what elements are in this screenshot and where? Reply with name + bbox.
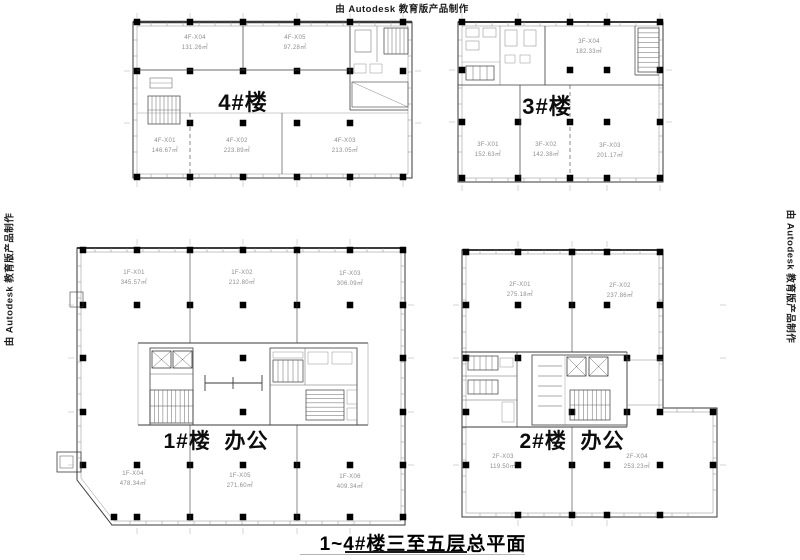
- room-label: 1F-X02212.80㎡: [229, 268, 255, 288]
- room-area: 142.38㎡: [533, 150, 559, 160]
- room-label: 1F-X05271.60㎡: [227, 471, 253, 491]
- room-label: 1F-X04478.34㎡: [120, 469, 146, 489]
- room-label: 2F-X01275.18㎡: [507, 280, 533, 300]
- room-code: 1F-X02: [229, 268, 255, 278]
- room-label: 4F-X04131.26㎡: [182, 33, 208, 53]
- room-code: 4F-X02: [224, 136, 250, 146]
- building-label: 1#楼 办公: [163, 425, 268, 455]
- room-code: 2F-X03: [490, 452, 516, 462]
- building-label: 3#楼: [522, 89, 571, 121]
- room-area: 131.26㎡: [182, 43, 208, 53]
- autodesk-watermark-left: 由 Autodesk 教育版产品制作: [2, 200, 15, 360]
- room-area: 119.50㎡: [490, 462, 516, 472]
- room-area: 223.89㎡: [224, 146, 250, 156]
- room-code: 3F-X02: [533, 140, 559, 150]
- room-area: 146.67㎡: [152, 146, 178, 156]
- room-area: 212.80㎡: [229, 278, 255, 288]
- room-code: 3F-X04: [576, 37, 602, 47]
- drawing-sheet: 由 Autodesk 教育版产品制作 由 Autodesk 教育版产品制作 由 …: [0, 0, 800, 560]
- room-code: 1F-X03: [337, 269, 363, 279]
- room-label: 2F-X02237.86㎡: [607, 281, 633, 301]
- room-label: 3F-X04182.33㎡: [576, 37, 602, 57]
- autodesk-watermark-right: 由 Autodesk 教育版产品制作: [786, 197, 799, 357]
- title-underline-light: [300, 554, 525, 555]
- room-code: 1F-X06: [337, 472, 363, 482]
- room-label: 4F-X02223.89㎡: [224, 136, 250, 156]
- room-area: 409.34㎡: [337, 482, 363, 492]
- room-code: 4F-X03: [332, 136, 358, 146]
- room-label: 3F-X03201.17㎡: [597, 141, 623, 161]
- room-code: 2F-X01: [507, 280, 533, 290]
- room-code: 4F-X01: [152, 136, 178, 146]
- room-code: 1F-X04: [120, 469, 146, 479]
- room-area: 201.17㎡: [597, 151, 623, 161]
- room-code: 1F-X05: [227, 471, 253, 481]
- building-label: 2#楼 办公: [519, 425, 624, 455]
- room-label: 1F-X03306.09㎡: [337, 269, 363, 289]
- room-area: 478.34㎡: [120, 479, 146, 489]
- room-label: 4F-X01146.67㎡: [152, 136, 178, 156]
- room-code: 4F-X05: [284, 33, 307, 43]
- room-area: 345.57㎡: [121, 278, 147, 288]
- room-area: 253.23㎡: [624, 462, 650, 472]
- room-area: 182.33㎡: [576, 47, 602, 57]
- room-code: 2F-X02: [607, 281, 633, 291]
- room-area: 271.60㎡: [227, 481, 253, 491]
- room-area: 97.28㎡: [284, 43, 307, 53]
- room-code: 4F-X04: [182, 33, 208, 43]
- room-area: 306.09㎡: [337, 279, 363, 289]
- autodesk-watermark-top: 由 Autodesk 教育版产品制作: [327, 1, 477, 15]
- room-area: 152.63㎡: [475, 150, 501, 160]
- room-label: 2F-X03119.50㎡: [490, 452, 516, 472]
- room-code: 3F-X01: [475, 140, 501, 150]
- room-label: 1F-X01345.57㎡: [121, 268, 147, 288]
- room-area: 213.05㎡: [332, 146, 358, 156]
- room-label: 3F-X02142.38㎡: [533, 140, 559, 160]
- room-label: 4F-X0597.28㎡: [284, 33, 307, 53]
- building-label: 4#楼: [218, 85, 267, 117]
- room-label: 4F-X03213.05㎡: [332, 136, 358, 156]
- room-code: 3F-X03: [597, 141, 623, 151]
- room-code: 1F-X01: [121, 268, 147, 278]
- room-area: 275.18㎡: [507, 290, 533, 300]
- room-label: 3F-X01152.63㎡: [475, 140, 501, 160]
- room-code: 2F-X04: [624, 452, 650, 462]
- room-area: 237.86㎡: [607, 291, 633, 301]
- room-label: 2F-X04253.23㎡: [624, 452, 650, 472]
- room-label: 1F-X06409.34㎡: [337, 472, 363, 492]
